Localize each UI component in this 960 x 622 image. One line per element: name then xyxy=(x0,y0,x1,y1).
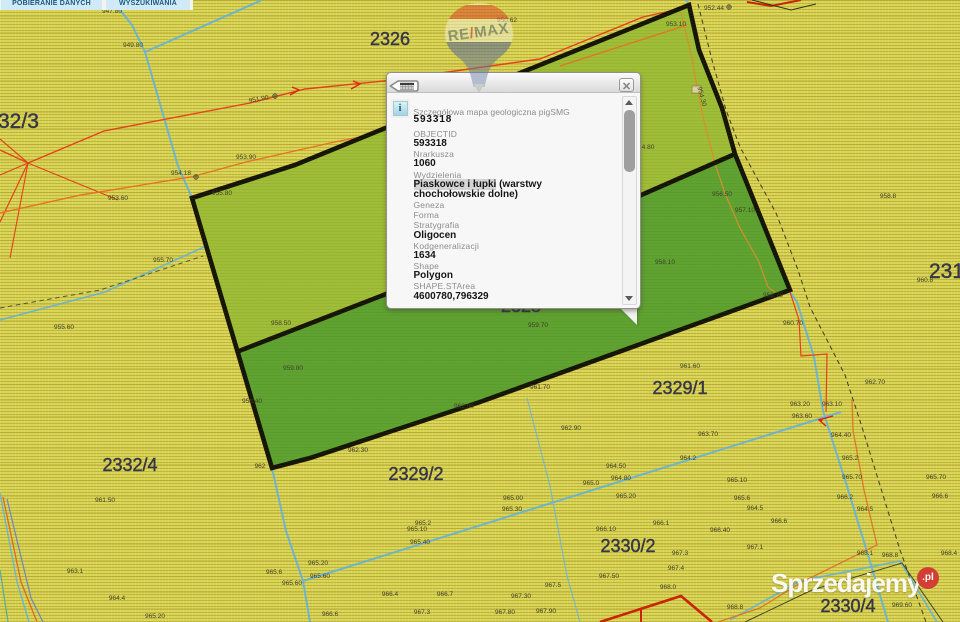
svg-text:964.50: 964.50 xyxy=(606,463,626,470)
svg-text:951.90: 951.90 xyxy=(248,94,269,104)
svg-text:32/3: 32/3 xyxy=(0,110,39,133)
svg-text:961.70: 961.70 xyxy=(530,384,550,391)
svg-text:962.90: 962.90 xyxy=(561,425,581,432)
svg-text:968.0: 968.0 xyxy=(660,584,677,591)
svg-text:966.6: 966.6 xyxy=(771,518,788,525)
svg-text:2330/2: 2330/2 xyxy=(600,536,655,556)
svg-text:966.4: 966.4 xyxy=(382,591,399,598)
svg-text:955.80: 955.80 xyxy=(212,190,232,197)
svg-text:962.00: 962.00 xyxy=(454,403,474,410)
svg-text:967.80: 967.80 xyxy=(495,609,515,616)
svg-text:965.20: 965.20 xyxy=(145,613,165,620)
svg-text:966.6: 966.6 xyxy=(322,611,339,618)
svg-text:968.1: 968.1 xyxy=(857,550,874,557)
svg-text:965.00: 965.00 xyxy=(503,495,523,502)
svg-text:965.10: 965.10 xyxy=(727,477,747,484)
svg-text:953.10: 953.10 xyxy=(666,21,686,28)
svg-text:962: 962 xyxy=(255,463,266,470)
svg-text:966.7: 966.7 xyxy=(437,591,454,598)
svg-text:2329/2: 2329/2 xyxy=(388,464,443,484)
svg-text:966.1: 966.1 xyxy=(653,520,670,527)
svg-text:967.90: 967.90 xyxy=(536,608,556,615)
svg-text:964.80: 964.80 xyxy=(611,475,631,482)
svg-text:2326: 2326 xyxy=(370,29,410,49)
svg-text:967.4: 967.4 xyxy=(668,565,685,572)
svg-text:959.70: 959.70 xyxy=(528,322,548,329)
svg-text:964.5: 964.5 xyxy=(857,506,874,513)
svg-text:963.20: 963.20 xyxy=(790,401,810,408)
svg-text:4.80: 4.80 xyxy=(642,144,655,151)
svg-text:968.4: 968.4 xyxy=(941,550,958,557)
svg-text:2330/4: 2330/4 xyxy=(820,596,875,616)
svg-text:953.90: 953.90 xyxy=(236,154,256,161)
svg-text:958.8: 958.8 xyxy=(880,193,897,200)
svg-text:965.6: 965.6 xyxy=(734,495,751,502)
svg-text:954.18: 954.18 xyxy=(171,170,191,177)
svg-text:962.70: 962.70 xyxy=(865,379,885,386)
svg-text:965.20: 965.20 xyxy=(616,493,636,500)
svg-text:961.50: 961.50 xyxy=(95,497,115,504)
svg-text:966.10: 966.10 xyxy=(596,526,616,533)
svg-text:965.40: 965.40 xyxy=(410,539,430,546)
svg-text:958.40: 958.40 xyxy=(242,398,262,405)
svg-text:969.60: 969.60 xyxy=(892,602,912,609)
svg-text:963.10: 963.10 xyxy=(822,401,842,408)
svg-text:949.80: 949.80 xyxy=(123,42,143,49)
svg-text:965.70: 965.70 xyxy=(842,474,862,481)
svg-text:960.8: 960.8 xyxy=(917,277,934,284)
svg-text:952.44: 952.44 xyxy=(704,5,724,12)
svg-text:965.6: 965.6 xyxy=(266,569,283,576)
svg-text:231: 231 xyxy=(929,260,960,283)
svg-text:963.60: 963.60 xyxy=(792,413,812,420)
svg-text:965.60: 965.60 xyxy=(282,580,302,587)
svg-text:965.10: 965.10 xyxy=(407,526,427,533)
svg-text:2329/1: 2329/1 xyxy=(652,378,707,398)
svg-text:965.0: 965.0 xyxy=(583,480,600,487)
svg-text:964.40: 964.40 xyxy=(831,432,851,439)
svg-text:963.1: 963.1 xyxy=(67,568,84,575)
svg-text:958.10: 958.10 xyxy=(655,259,675,266)
svg-text:958.50: 958.50 xyxy=(271,320,291,327)
svg-text:967.3: 967.3 xyxy=(672,550,689,557)
svg-text:967.1: 967.1 xyxy=(747,544,764,551)
svg-text:965.20: 965.20 xyxy=(308,560,328,567)
svg-text:966.40: 966.40 xyxy=(710,527,730,534)
svg-text:966.2: 966.2 xyxy=(837,494,854,501)
svg-text:959.80: 959.80 xyxy=(283,365,303,372)
svg-text:967.3: 967.3 xyxy=(414,609,431,616)
svg-text:967.30: 967.30 xyxy=(511,593,531,600)
svg-text:960.70: 960.70 xyxy=(783,320,803,327)
svg-text:968.8: 968.8 xyxy=(727,604,744,611)
svg-text:963.70: 963.70 xyxy=(698,431,718,438)
svg-text:964.4: 964.4 xyxy=(109,595,126,602)
svg-text:955.70: 955.70 xyxy=(153,257,173,264)
svg-text:957.10: 957.10 xyxy=(735,207,755,214)
svg-text:965.70: 965.70 xyxy=(926,474,946,481)
svg-text:958.70: 958.70 xyxy=(763,292,783,299)
svg-text:955.60: 955.60 xyxy=(54,324,74,331)
svg-text:2332/4: 2332/4 xyxy=(102,455,157,475)
svg-text:956.50: 956.50 xyxy=(712,191,732,198)
svg-text:953.60: 953.60 xyxy=(108,195,128,202)
svg-text:965.30: 965.30 xyxy=(502,506,522,513)
svg-text:965.2: 965.2 xyxy=(842,455,859,462)
svg-text:964.2: 964.2 xyxy=(680,455,697,462)
svg-text:967.5: 967.5 xyxy=(545,582,562,589)
svg-text:961.60: 961.60 xyxy=(680,363,700,370)
svg-text:967.50: 967.50 xyxy=(599,573,619,580)
svg-text:965.60: 965.60 xyxy=(310,573,330,580)
svg-text:968.8: 968.8 xyxy=(882,552,899,559)
svg-text:964.5: 964.5 xyxy=(747,505,764,512)
svg-text:966.6: 966.6 xyxy=(932,493,949,500)
svg-text:962.30: 962.30 xyxy=(348,447,368,454)
